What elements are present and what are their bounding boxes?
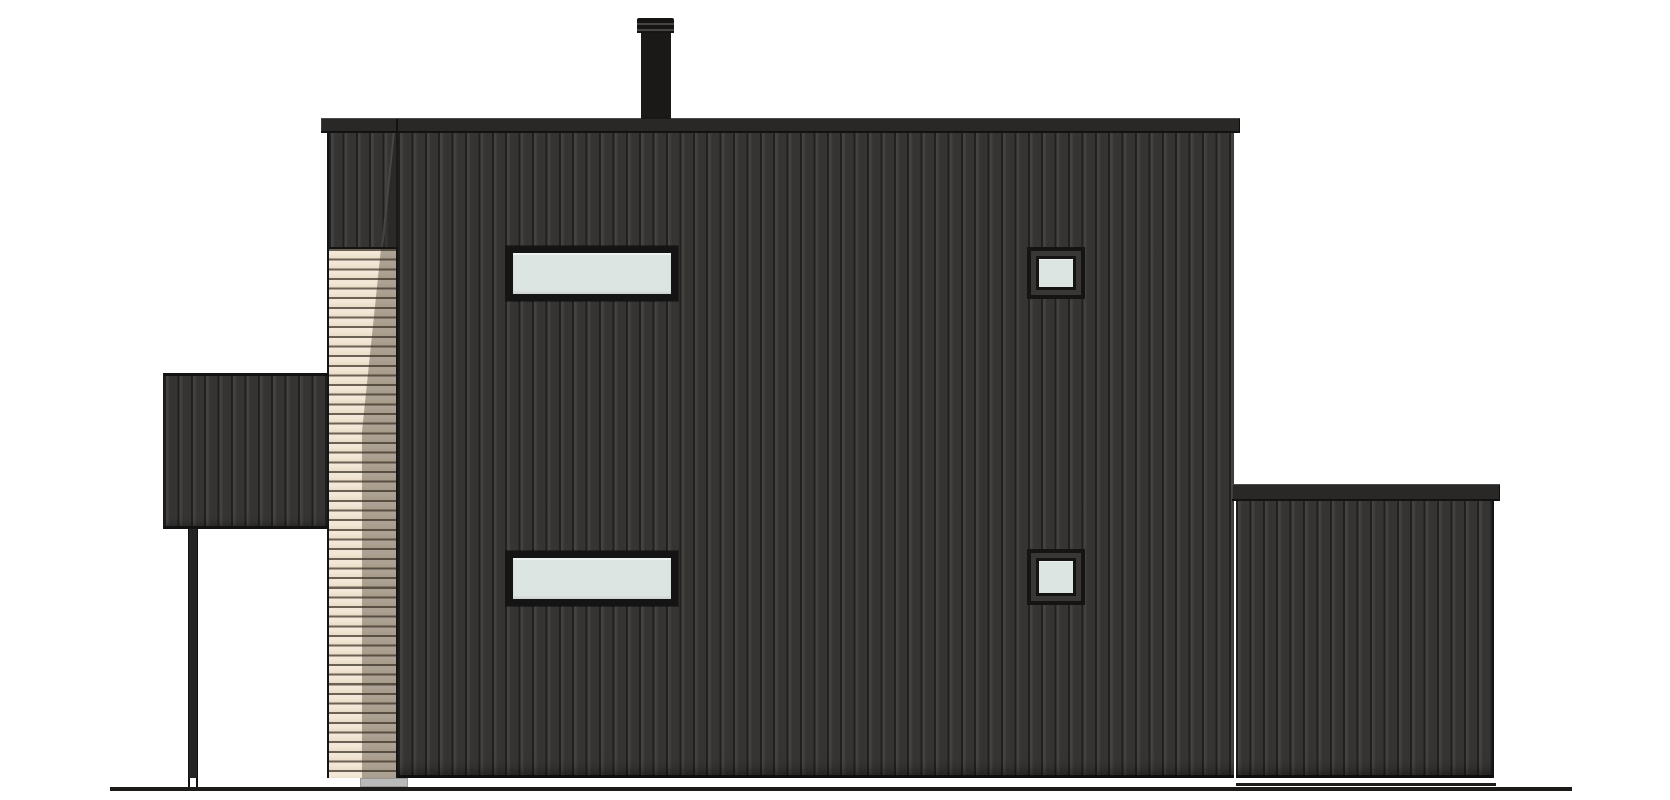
canopy-roof bbox=[163, 373, 327, 529]
chimney-flue bbox=[641, 31, 671, 119]
canopy-post bbox=[188, 529, 198, 778]
main-roof-fascia bbox=[321, 118, 1240, 133]
annex-foundation-line bbox=[1236, 783, 1496, 786]
window-upper-left bbox=[506, 246, 678, 301]
fascia-seam bbox=[396, 119, 398, 132]
main-wall-siding bbox=[398, 133, 1234, 778]
elevation-canvas bbox=[0, 0, 1670, 800]
glass-pane bbox=[513, 558, 671, 599]
glass-pane bbox=[513, 253, 671, 294]
canopy-post-footing bbox=[188, 778, 198, 787]
annex-roof-fascia bbox=[1232, 484, 1500, 501]
concrete-footing bbox=[360, 778, 408, 787]
window-lower-left bbox=[506, 551, 678, 606]
accent-column-slats bbox=[327, 247, 398, 778]
window-upper-right bbox=[1027, 247, 1085, 299]
glass-pane bbox=[1039, 259, 1073, 287]
annex-wall-siding bbox=[1236, 501, 1494, 778]
accent-column-upper bbox=[327, 133, 398, 247]
chimney-cap bbox=[637, 18, 674, 33]
glass-pane bbox=[1039, 561, 1073, 593]
slat-shadow-overlay bbox=[329, 249, 396, 778]
window-lower-right bbox=[1027, 549, 1085, 605]
ground-line bbox=[110, 787, 1572, 791]
